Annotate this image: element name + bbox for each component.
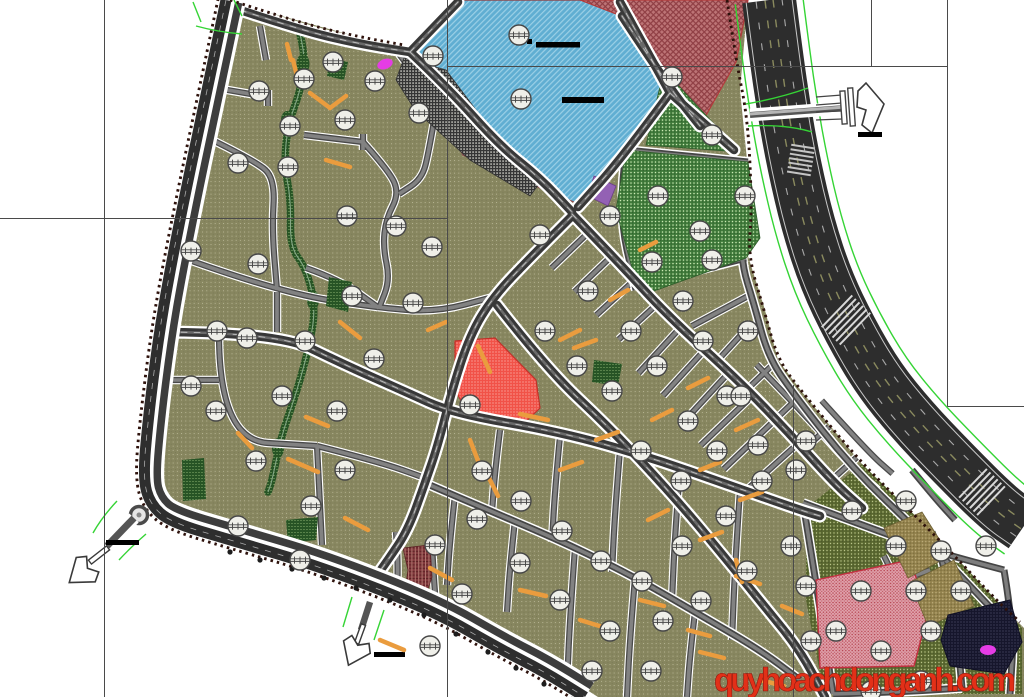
svg-text:quyhoachdonganh.com: quyhoachdonganh.com [714, 661, 1016, 697]
